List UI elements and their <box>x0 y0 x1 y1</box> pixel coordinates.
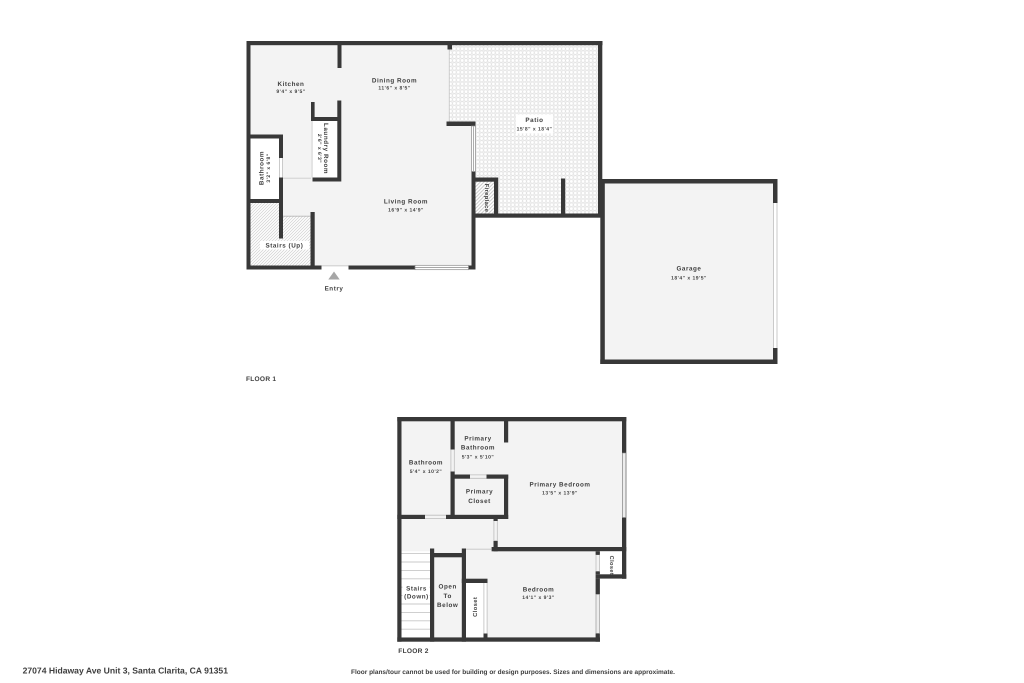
svg-text:Open: Open <box>439 584 457 591</box>
svg-text:14'1" x 9'3": 14'1" x 9'3" <box>522 595 555 601</box>
svg-text:Closet: Closet <box>468 498 491 505</box>
svg-text:5'3" x 5'10": 5'3" x 5'10" <box>462 454 495 460</box>
svg-text:Below: Below <box>437 602 458 609</box>
svg-text:5'4" x 10'2": 5'4" x 10'2" <box>410 469 443 475</box>
svg-text:3'2" x 6'8": 3'2" x 6'8" <box>266 153 272 182</box>
svg-text:Floor plans/tour cannot be use: Floor plans/tour cannot be used for buil… <box>351 669 675 676</box>
svg-text:Bathroom: Bathroom <box>409 460 443 467</box>
svg-text:To: To <box>444 593 452 600</box>
svg-text:Fireplace: Fireplace <box>483 184 490 213</box>
svg-text:FLOOR 1: FLOOR 1 <box>246 376 276 383</box>
svg-text:11'6" x 8'5": 11'6" x 8'5" <box>378 86 410 92</box>
svg-text:2'6" x 6'3": 2'6" x 6'3" <box>316 134 322 163</box>
svg-text:9'4" x 9'5": 9'4" x 9'5" <box>276 89 305 95</box>
svg-text:Stairs: Stairs <box>406 585 427 592</box>
svg-text:18'4" x 19'5": 18'4" x 19'5" <box>671 276 707 282</box>
svg-text:Patio: Patio <box>525 117 543 124</box>
svg-text:13'5" x 13'9": 13'5" x 13'9" <box>542 491 578 497</box>
svg-text:Dining Room: Dining Room <box>372 78 417 85</box>
svg-text:Stairs (Up): Stairs (Up) <box>265 243 303 250</box>
svg-text:27074 Hidaway Ave Unit 3, Sant: 27074 Hidaway Ave Unit 3, Santa Clarita,… <box>23 666 229 676</box>
svg-text:Primary: Primary <box>464 435 491 442</box>
svg-text:Entry: Entry <box>325 285 344 292</box>
svg-text:Primary: Primary <box>466 489 493 496</box>
svg-text:15'8" x 18'4": 15'8" x 18'4" <box>517 127 553 133</box>
svg-text:Primary Bedroom: Primary Bedroom <box>529 481 590 488</box>
svg-text:Closet: Closet <box>608 556 615 576</box>
svg-text:FLOOR 2: FLOOR 2 <box>398 648 428 655</box>
svg-text:Bathroom: Bathroom <box>461 445 495 452</box>
svg-text:Bathroom: Bathroom <box>259 151 266 185</box>
svg-text:Garage: Garage <box>676 265 701 272</box>
svg-text:Kitchen: Kitchen <box>278 81 305 88</box>
svg-text:Bedroom: Bedroom <box>523 587 555 594</box>
svg-text:Living Room: Living Room <box>384 199 428 206</box>
svg-text:(Down): (Down) <box>404 594 429 601</box>
svg-text:16'9" x 14'9": 16'9" x 14'9" <box>388 207 424 213</box>
svg-text:Closet: Closet <box>472 597 479 617</box>
